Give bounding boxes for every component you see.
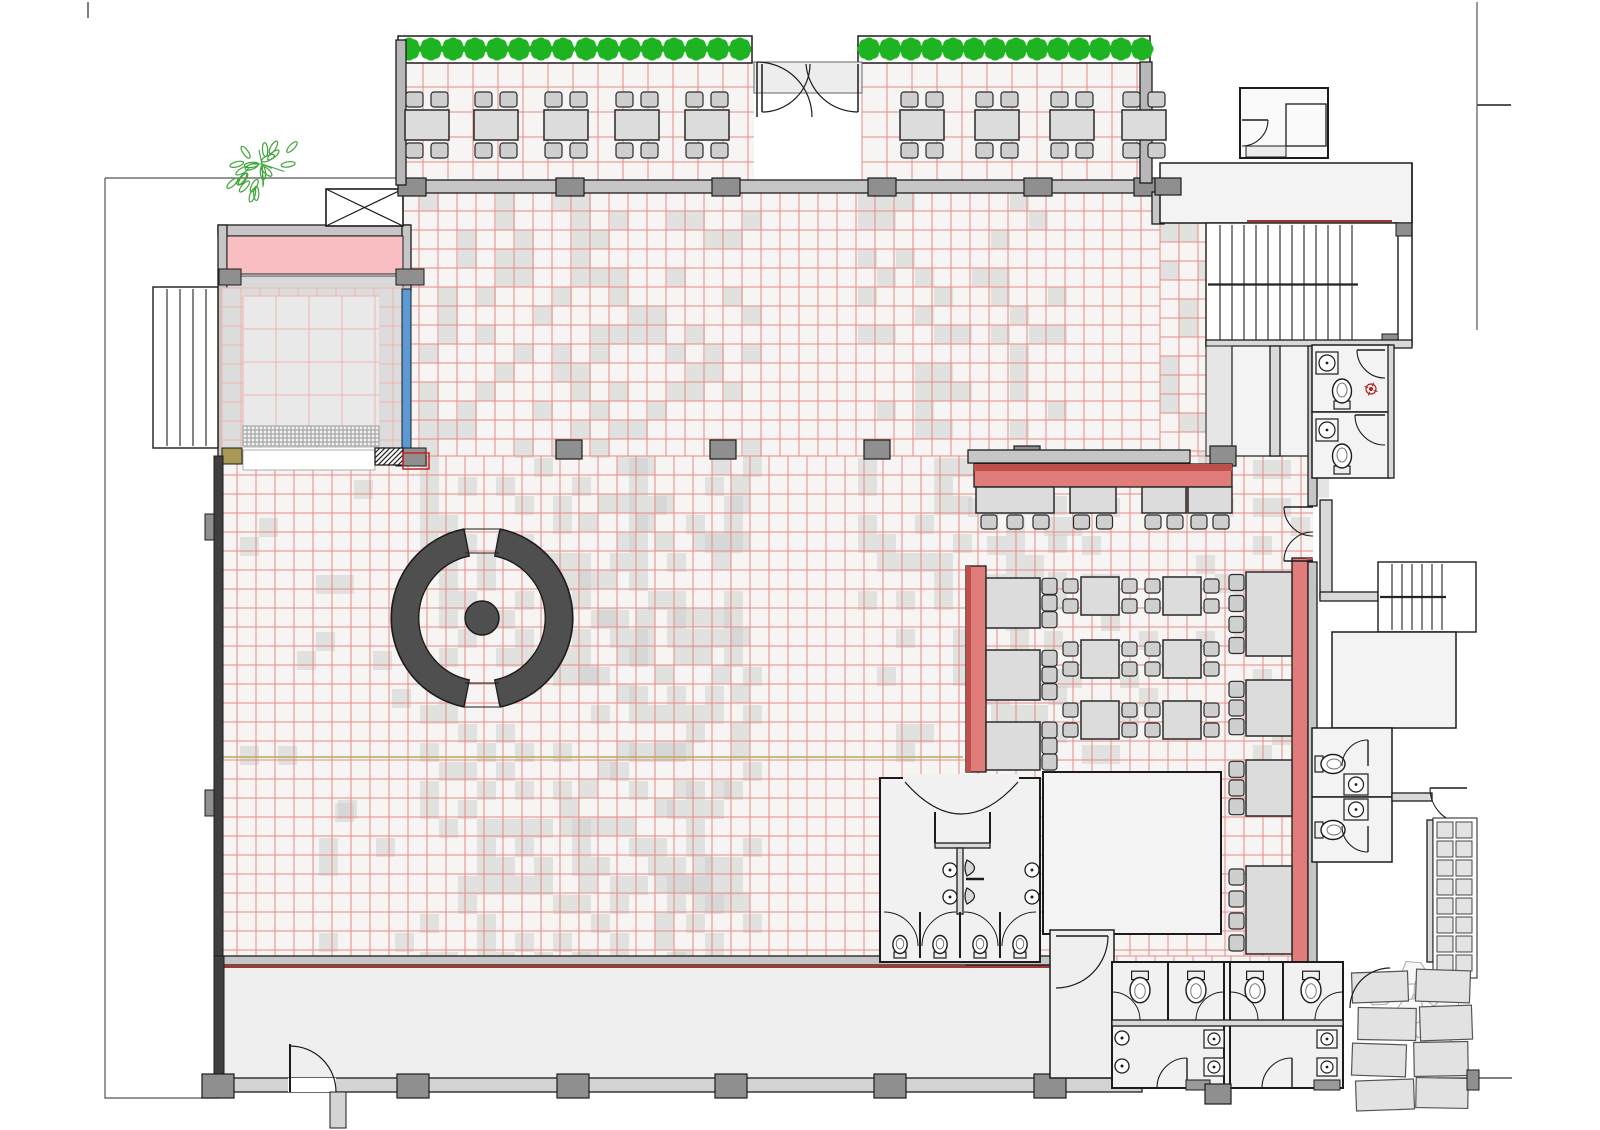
sink (943, 890, 957, 904)
column (556, 440, 582, 459)
toilet (1013, 936, 1027, 959)
skylight-shaft (326, 189, 403, 226)
service-stair (1378, 562, 1476, 632)
entrance-inset-tiles (243, 296, 379, 426)
wing-wall (1388, 345, 1394, 478)
building-wall-bottom (218, 1078, 1142, 1092)
rear-vestibule (1050, 930, 1114, 1078)
sink (1344, 799, 1368, 820)
service-room (1043, 772, 1221, 934)
column (397, 1074, 429, 1098)
wing-room (1332, 632, 1456, 728)
column (1024, 178, 1052, 196)
toilet (1130, 971, 1150, 1003)
sink (1317, 1030, 1337, 1048)
column (1210, 446, 1236, 466)
sink (1317, 1058, 1337, 1076)
column (864, 440, 890, 459)
wing-wall-horiz (1320, 592, 1378, 601)
sink (1316, 352, 1338, 374)
column (219, 269, 241, 285)
entrance-strip (227, 276, 403, 288)
column (1205, 1084, 1231, 1104)
restroom-entry-gap (903, 774, 1019, 784)
entrance-block-tan (222, 448, 242, 464)
restroom-mid-wall (1112, 1020, 1343, 1026)
booth-table (986, 578, 1057, 628)
kiosk-counter (1246, 146, 1286, 157)
booth-table (986, 722, 1057, 770)
anteroom-edge (1206, 346, 1232, 456)
column (710, 440, 736, 459)
hall-grid-upper (400, 192, 1160, 456)
entrance-pink-zone (227, 236, 403, 274)
threshold (1314, 1080, 1340, 1090)
sink (1115, 1059, 1129, 1073)
wing-wall-v2 (1427, 820, 1433, 962)
toilet (1315, 821, 1345, 840)
glass-wall-blue (402, 289, 411, 449)
banquette-left-edge (966, 566, 971, 772)
main-staircase (1206, 223, 1398, 346)
column (1155, 178, 1181, 195)
column (715, 1074, 747, 1098)
column (557, 1074, 589, 1098)
booth-table (986, 650, 1057, 700)
column (205, 790, 214, 816)
column (868, 178, 896, 196)
toilet (1315, 755, 1345, 774)
toilet (973, 936, 987, 959)
sink (943, 863, 957, 877)
sink (1025, 890, 1039, 904)
corridor-wall-left (214, 956, 224, 1082)
door-gap (288, 1078, 336, 1092)
sink (1115, 1031, 1129, 1045)
column (202, 1074, 234, 1098)
dining-wall-top (968, 450, 1190, 463)
corridor-red-line (218, 965, 1095, 968)
corridor (218, 968, 1095, 1078)
entrance-mat (243, 426, 379, 446)
booth-table (1229, 760, 1292, 816)
exterior-stub (330, 1092, 346, 1128)
stone-path (1351, 962, 1472, 1112)
toilet (1186, 971, 1206, 1003)
floor-plan-viewer (0, 0, 1600, 1130)
toilet (1333, 379, 1352, 409)
entrance-exterior-stairs (153, 287, 218, 448)
boundary-stub (1467, 1070, 1479, 1090)
dining-table (976, 487, 1054, 529)
sink (1316, 419, 1338, 441)
column (205, 514, 214, 540)
sink (1025, 863, 1039, 877)
column (396, 269, 424, 285)
banquette-top-edge (974, 464, 1232, 471)
toilet (933, 936, 947, 959)
toilet (1301, 971, 1321, 1003)
column (712, 178, 740, 196)
booth-table (1229, 680, 1292, 736)
sink (1204, 1058, 1224, 1076)
partition-stem (957, 848, 963, 914)
partition-bar (935, 843, 990, 848)
toilet (893, 936, 907, 959)
gallery-room (1160, 163, 1412, 223)
column (874, 1074, 906, 1098)
anteroom-wall (1270, 346, 1280, 456)
wing-partition (1392, 793, 1432, 801)
toilet (1333, 444, 1352, 474)
floor-plan (0, 0, 1600, 1130)
entrance-sidewalk (243, 450, 375, 470)
sink (1204, 1030, 1224, 1048)
wing-wall-vert (1320, 500, 1332, 598)
column (1396, 223, 1412, 236)
column (556, 178, 584, 196)
tree (225, 140, 298, 203)
hall-wall-left (214, 456, 223, 956)
sink (1344, 774, 1368, 795)
